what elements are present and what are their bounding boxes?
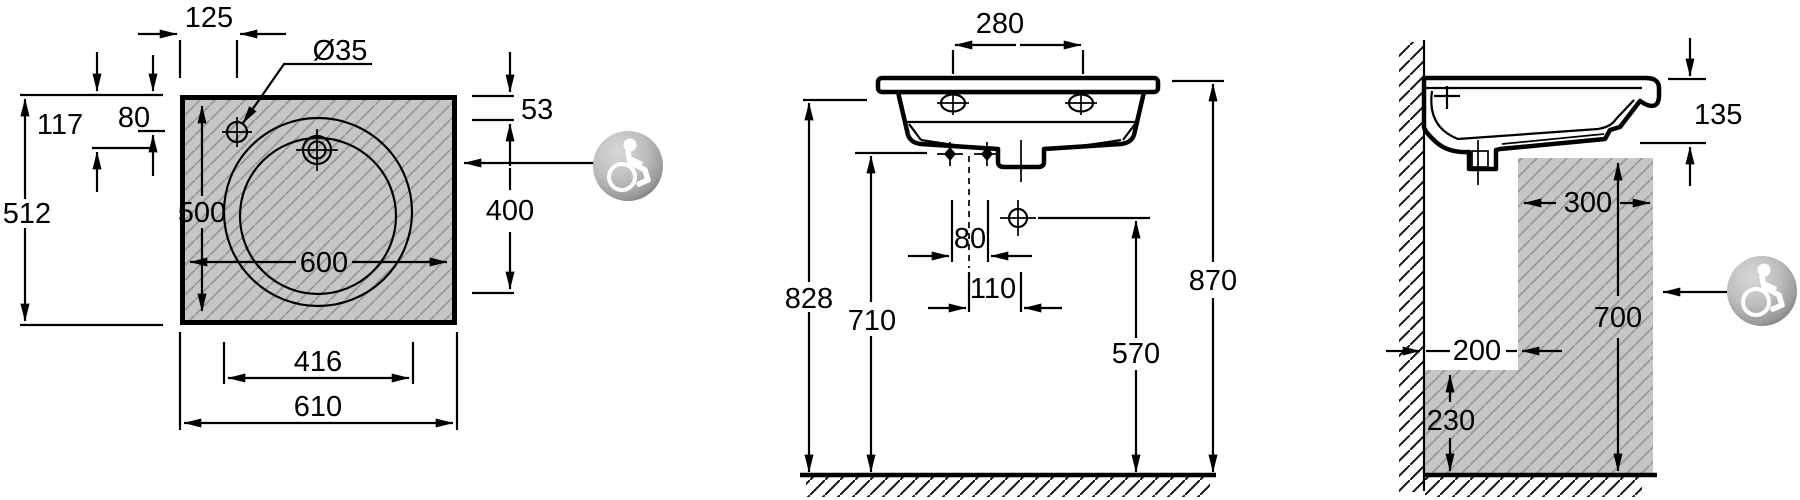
dim-label-110: 110 <box>970 273 1016 305</box>
dim-label-416: 416 <box>294 346 342 378</box>
dim-right-53: 53 <box>472 52 553 166</box>
dim-height-870: 870 <box>1172 81 1237 472</box>
technical-drawing-page: 125 Ø35 117 80 512 500 <box>0 0 1800 500</box>
dim-label-117: 117 <box>37 109 83 141</box>
dim-label-700: 700 <box>1594 302 1642 334</box>
washbasin-drawing-canvas: 125 Ø35 117 80 512 500 <box>0 0 1800 500</box>
dim-label-512: 512 <box>3 198 51 230</box>
dim-label-200: 200 <box>1453 335 1501 367</box>
dim-label-870: 870 <box>1189 265 1237 297</box>
wall-hatch <box>1399 42 1424 492</box>
dim-label-710: 710 <box>848 305 896 337</box>
wheelchair-accessibility-icon <box>593 131 663 201</box>
basin-body-side <box>1424 78 1659 169</box>
dim-height-828: 828 <box>785 100 867 472</box>
basin-rim-front <box>878 78 1158 92</box>
front-elevation-view: 280 828 710 870 570 <box>785 8 1237 497</box>
dim-label-300: 300 <box>1564 187 1612 219</box>
dim-back-117: 117 <box>37 52 97 192</box>
dim-label-828: 828 <box>785 283 833 315</box>
floor-hatch-front <box>806 477 1210 497</box>
dim-apron-135: 135 <box>1640 38 1742 186</box>
dim-drain-110: 110 <box>928 272 1062 312</box>
dim-front-416: 416 <box>224 342 413 384</box>
dim-tap-offset-125: 125 <box>138 2 286 78</box>
dim-label-53: 53 <box>521 94 553 126</box>
plan-view: 125 Ø35 117 80 512 500 <box>3 2 663 430</box>
dim-label-280: 280 <box>976 8 1024 40</box>
dim-label-dia35: Ø35 <box>313 35 368 67</box>
dim-tap-centres-280: 280 <box>953 8 1083 74</box>
supply-point-symbol <box>1000 200 1036 236</box>
dim-label-80-front: 80 <box>954 223 986 255</box>
dim-label-125: 125 <box>185 2 233 34</box>
dim-label-500: 500 <box>178 197 226 229</box>
dim-label-135: 135 <box>1694 99 1742 131</box>
dim-back-80: 80 <box>118 55 153 176</box>
dim-label-230: 230 <box>1427 405 1475 437</box>
dim-height-570: 570 <box>1038 218 1160 472</box>
dim-height-710: 710 <box>848 153 927 472</box>
dim-label-80-plan: 80 <box>118 102 150 134</box>
dim-label-610: 610 <box>294 391 342 423</box>
side-section-view: 135 300 700 200 230 <box>1386 38 1797 497</box>
wheelchair-accessibility-icon <box>1727 256 1797 326</box>
dim-label-570: 570 <box>1112 338 1160 370</box>
dim-right-400: 400 <box>472 168 534 293</box>
floor-hatch-side <box>1425 477 1642 497</box>
dim-label-600: 600 <box>300 247 348 279</box>
dim-label-400: 400 <box>486 195 534 227</box>
